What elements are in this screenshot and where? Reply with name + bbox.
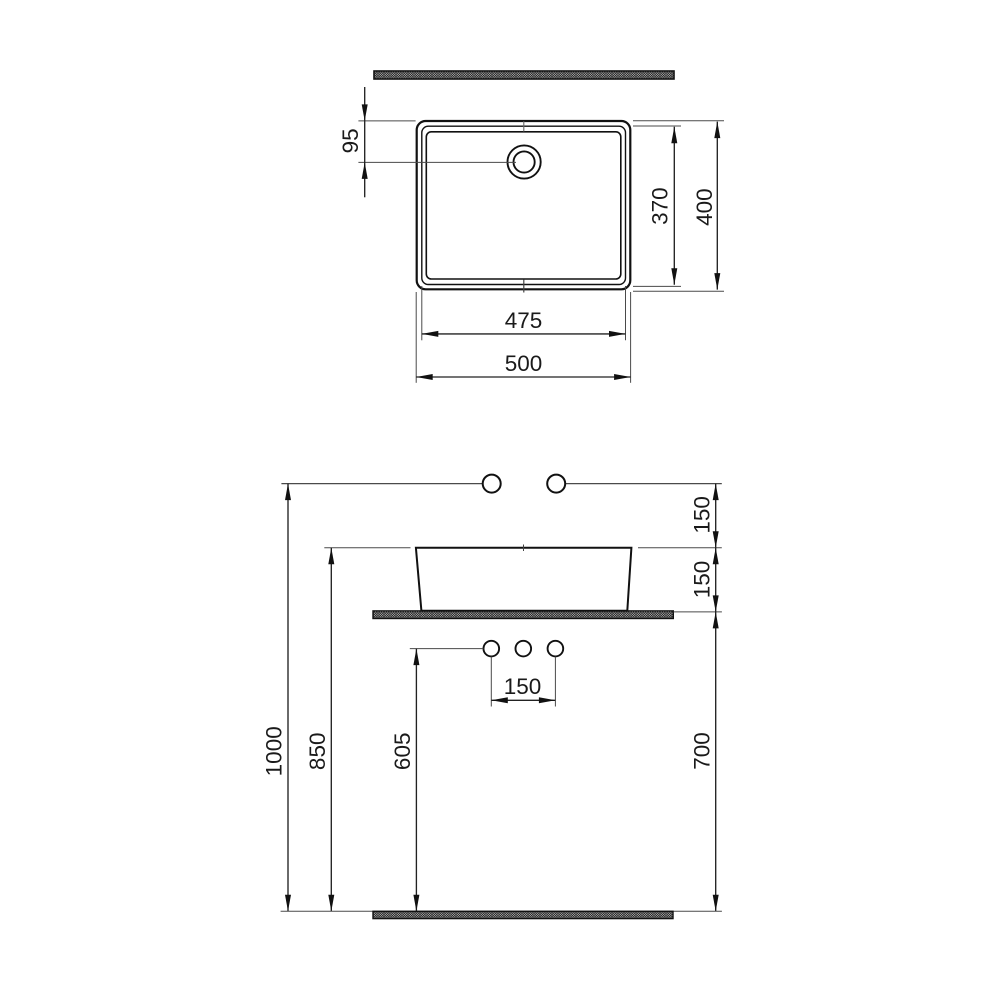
svg-text:475: 475 [505,308,543,333]
svg-text:150: 150 [504,674,542,699]
svg-text:700: 700 [689,732,714,770]
svg-text:150: 150 [689,561,714,599]
svg-text:150: 150 [689,496,714,534]
svg-text:850: 850 [305,733,330,771]
svg-text:95: 95 [338,128,363,153]
svg-text:605: 605 [390,733,415,771]
svg-text:500: 500 [505,351,543,376]
svg-text:400: 400 [692,188,717,226]
svg-text:1000: 1000 [262,726,287,776]
svg-text:370: 370 [647,187,672,225]
